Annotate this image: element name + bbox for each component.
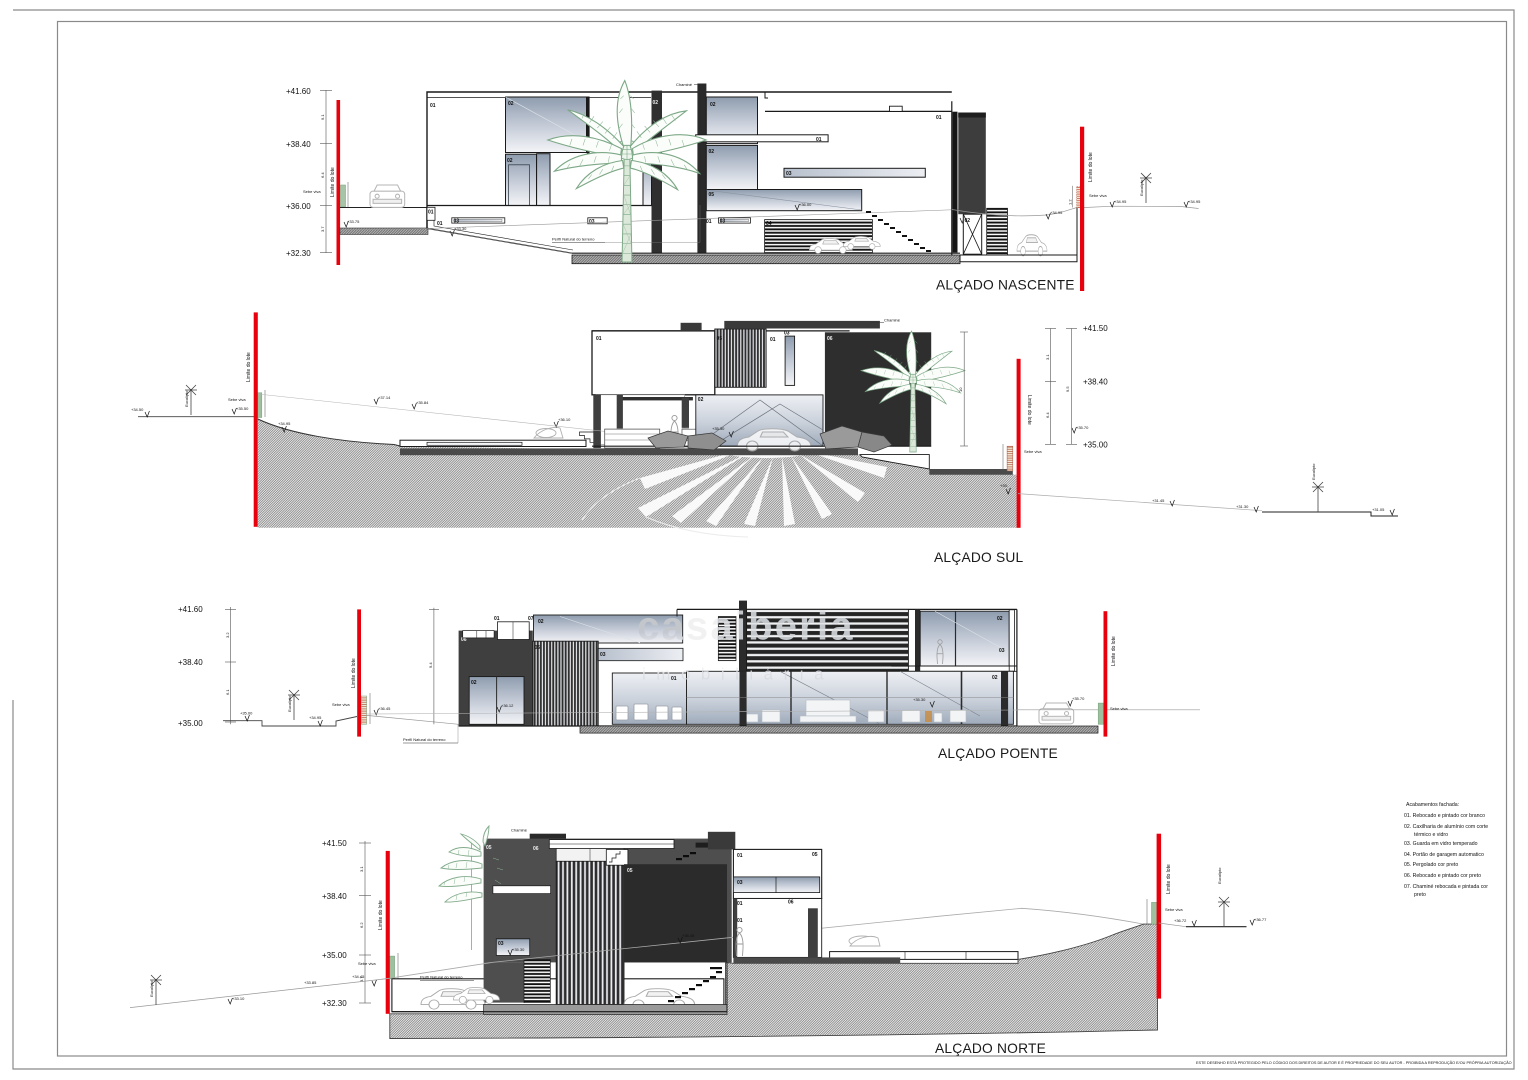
svg-text:+34.95: +34.95 xyxy=(1188,199,1201,204)
svg-text:Sebe viva: Sebe viva xyxy=(303,189,321,194)
svg-text:01: 01 xyxy=(428,210,434,216)
svg-text:9.5: 9.5 xyxy=(1065,386,1070,392)
svg-text:05: 05 xyxy=(486,845,492,851)
svg-text:+36.45: +36.45 xyxy=(682,933,695,938)
svg-text:Limite do lote: Limite do lote xyxy=(330,167,336,197)
svg-text:Eucalipto: Eucalipto xyxy=(287,695,292,712)
svg-text:térmico e vidro: térmico e vidro xyxy=(1414,832,1448,838)
svg-text:01: 01 xyxy=(770,337,776,343)
svg-text:+35.00: +35.00 xyxy=(322,951,347,960)
svg-text:+35.30: +35.30 xyxy=(512,947,525,952)
svg-text:03: 03 xyxy=(786,171,792,177)
svg-text:01: 01 xyxy=(706,219,712,225)
svg-text:01: 01 xyxy=(816,137,822,143)
svg-text:6.4: 6.4 xyxy=(1045,412,1050,418)
svg-text:+35.00: +35.00 xyxy=(1083,441,1108,450)
svg-text:+36.72: +36.72 xyxy=(1174,918,1187,923)
svg-text:07. Chaminé rebocada e pintada: 07. Chaminé rebocada e pintada cor xyxy=(1404,884,1488,890)
svg-text:6.4: 6.4 xyxy=(320,172,325,178)
svg-text:03: 03 xyxy=(498,941,504,947)
svg-text:05: 05 xyxy=(709,192,715,198)
svg-text:+38.40: +38.40 xyxy=(1083,378,1108,387)
svg-text:+36.77: +36.77 xyxy=(1254,917,1267,922)
svg-text:06: 06 xyxy=(533,846,539,852)
svg-text:+33.85: +33.85 xyxy=(304,980,317,985)
svg-text:+34.95: +34.95 xyxy=(1050,210,1063,215)
svg-text:+34.45: +34.45 xyxy=(352,974,365,979)
svg-text:+35.50: +35.50 xyxy=(236,406,249,411)
svg-text:3.1: 3.1 xyxy=(359,866,364,872)
svg-text:01: 01 xyxy=(430,103,436,109)
svg-text:04: 04 xyxy=(766,221,772,227)
svg-text:01: 01 xyxy=(737,918,743,924)
svg-text:Limite do lote: Limite do lote xyxy=(378,900,384,930)
svg-text:Limite do lote: Limite do lote xyxy=(1088,152,1094,182)
svg-text:+31.30: +31.30 xyxy=(1236,504,1249,509)
svg-text:Sebe viva: Sebe viva xyxy=(1110,706,1128,711)
svg-text:6.1: 6.1 xyxy=(225,689,230,695)
svg-text:Sebe viva: Sebe viva xyxy=(1024,449,1042,454)
svg-text:+35.70: +35.70 xyxy=(1076,425,1089,430)
svg-text:+33.: +33. xyxy=(1000,483,1008,488)
svg-text:Sebe viva: Sebe viva xyxy=(358,961,376,966)
svg-text:ALÇADO POENTE: ALÇADO POENTE xyxy=(938,746,1058,761)
svg-text:02: 02 xyxy=(965,218,971,224)
svg-text:05: 05 xyxy=(535,645,541,651)
svg-text:05. Pergolado cor preto: 05. Pergolado cor preto xyxy=(1404,862,1458,868)
svg-text:Chaminé: Chaminé xyxy=(884,318,901,323)
svg-text:03: 03 xyxy=(589,219,595,225)
svg-text:+35.00: +35.00 xyxy=(178,719,203,728)
svg-text:+33.10: +33.10 xyxy=(232,996,245,1001)
svg-text:Sebe viva: Sebe viva xyxy=(228,397,246,402)
svg-text:02: 02 xyxy=(653,100,659,106)
svg-text:03: 03 xyxy=(720,219,726,225)
svg-text:10: 10 xyxy=(958,387,963,392)
svg-text:+41.50: +41.50 xyxy=(322,839,347,848)
svg-text:02: 02 xyxy=(997,616,1003,622)
svg-text:03: 03 xyxy=(999,648,1005,654)
svg-text:+34.95: +34.95 xyxy=(278,421,291,426)
svg-text:Eucalipto: Eucalipto xyxy=(1139,179,1144,196)
svg-text:02: 02 xyxy=(508,101,514,107)
svg-text:+41.60: +41.60 xyxy=(286,87,311,96)
svg-text:Perfil Natural do terreno: Perfil Natural do terreno xyxy=(552,237,595,242)
svg-text:ESTE DESENHO ESTÁ PROTEGIDO PE: ESTE DESENHO ESTÁ PROTEGIDO PELO CÓDIGO … xyxy=(1196,1060,1512,1065)
svg-text:+32.30: +32.30 xyxy=(286,249,311,258)
svg-text:+36.00: +36.00 xyxy=(286,202,311,211)
svg-text:Chaminé: Chaminé xyxy=(511,828,528,833)
svg-text:Eucalipto: Eucalipto xyxy=(1217,867,1222,884)
svg-text:02: 02 xyxy=(698,397,704,403)
svg-text:+34.95: +34.95 xyxy=(309,715,322,720)
svg-text:01: 01 xyxy=(494,616,500,622)
svg-text:01: 01 xyxy=(437,221,443,227)
svg-text:ALÇADO NORTE: ALÇADO NORTE xyxy=(935,1041,1046,1056)
svg-text:Eucalipto: Eucalipto xyxy=(184,390,189,407)
svg-text:06: 06 xyxy=(827,336,833,342)
svg-text:3.1: 3.1 xyxy=(1045,354,1050,360)
svg-text:+38.40: +38.40 xyxy=(322,892,347,901)
svg-text:02: 02 xyxy=(507,158,513,164)
svg-text:02: 02 xyxy=(471,680,477,686)
svg-text:Chaminé: Chaminé xyxy=(676,82,693,87)
svg-text:05: 05 xyxy=(812,852,818,858)
svg-text:+34.95: +34.95 xyxy=(1114,199,1127,204)
svg-text:ALÇADO SUL: ALÇADO SUL xyxy=(934,550,1024,565)
svg-text:Sebe viva: Sebe viva xyxy=(1089,193,1107,198)
svg-text:+35.84: +35.84 xyxy=(416,400,429,405)
svg-text:Acabamentos fachada:: Acabamentos fachada: xyxy=(1406,802,1459,808)
svg-text:+33.75: +33.75 xyxy=(347,219,360,224)
svg-text:03. Guarda em vidro temperado: 03. Guarda em vidro temperado xyxy=(1404,841,1478,847)
svg-text:02: 02 xyxy=(538,619,544,625)
svg-text:01: 01 xyxy=(737,853,743,859)
svg-text:07: 07 xyxy=(528,616,534,622)
svg-text:Limite do lote: Limite do lote xyxy=(1111,636,1117,666)
svg-text:Perfil Natural do terreno: Perfil Natural do terreno xyxy=(420,975,463,980)
svg-text:+35.00: +35.00 xyxy=(240,711,253,716)
svg-text:Limite do lote: Limite do lote xyxy=(1026,395,1032,425)
svg-text:+36.45: +36.45 xyxy=(378,706,391,711)
svg-text:Limite do lote: Limite do lote xyxy=(1166,864,1172,894)
svg-text:Eucalipto: Eucalipto xyxy=(1311,463,1316,480)
svg-text:1.2: 1.2 xyxy=(1067,199,1072,205)
svg-text:05: 05 xyxy=(627,868,633,874)
svg-text:06: 06 xyxy=(788,900,794,906)
svg-text:02: 02 xyxy=(992,675,998,681)
svg-text:3.7: 3.7 xyxy=(320,226,325,232)
svg-text:+35.70: +35.70 xyxy=(1072,696,1085,701)
svg-text:+37.14: +37.14 xyxy=(378,395,391,400)
svg-text:+41.60: +41.60 xyxy=(178,605,203,614)
svg-text:6.2: 6.2 xyxy=(359,922,364,928)
svg-text:ALÇADO NASCENTE: ALÇADO NASCENTE xyxy=(936,278,1075,293)
svg-text:9.4: 9.4 xyxy=(428,662,433,668)
svg-text:01: 01 xyxy=(596,336,602,342)
svg-text:Limite do lote: Limite do lote xyxy=(351,658,357,688)
svg-text:Sebe viva: Sebe viva xyxy=(1165,907,1183,912)
svg-text:03: 03 xyxy=(454,219,460,225)
svg-text:03: 03 xyxy=(600,652,606,658)
svg-text:01: 01 xyxy=(737,901,743,907)
svg-text:preto: preto xyxy=(1414,892,1426,898)
svg-text:+36.10: +36.10 xyxy=(558,417,571,422)
svg-text:Eucalipto: Eucalipto xyxy=(149,980,154,997)
svg-text:02: 02 xyxy=(709,149,715,155)
svg-text:+38.40: +38.40 xyxy=(286,140,311,149)
svg-text:02. Caxilharia de alumínio com: 02. Caxilharia de alumínio com corte xyxy=(1404,824,1488,830)
svg-text:03: 03 xyxy=(737,880,743,886)
svg-text:+35.30: +35.30 xyxy=(712,426,725,431)
svg-text:Limite do lote: Limite do lote xyxy=(246,352,252,382)
svg-text:02: 02 xyxy=(710,102,716,108)
svg-text:06. Rebocado e pintado cor pre: 06. Rebocado e pintado cor preto xyxy=(1404,873,1481,879)
svg-text:+36.00: +36.00 xyxy=(799,202,812,207)
svg-text:05: 05 xyxy=(717,336,723,342)
svg-text:03: 03 xyxy=(784,331,790,337)
svg-text:casaiberia: casaiberia xyxy=(637,605,855,649)
svg-text:Sebe viva: Sebe viva xyxy=(332,702,350,707)
svg-text:04. Portão de garagem automati: 04. Portão de garagem automatico xyxy=(1404,852,1484,858)
svg-text:01. Rebocado e pintado cor bra: 01. Rebocado e pintado cor branco xyxy=(1404,813,1485,819)
svg-text:01: 01 xyxy=(936,115,942,121)
svg-text:9.1: 9.1 xyxy=(320,114,325,120)
svg-text:+31.05: +31.05 xyxy=(1372,507,1385,512)
svg-text:+41.50: +41.50 xyxy=(1083,324,1108,333)
svg-text:Perfil Natural do terreno: Perfil Natural do terreno xyxy=(403,737,446,742)
svg-text:+36.12: +36.12 xyxy=(501,703,514,708)
svg-text:imobiliária: imobiliária xyxy=(642,665,834,684)
svg-text:+38.40: +38.40 xyxy=(178,658,203,667)
svg-text:+32.30: +32.30 xyxy=(322,999,347,1008)
svg-text:+31.45: +31.45 xyxy=(1152,498,1165,503)
svg-text:3.2: 3.2 xyxy=(225,632,230,638)
svg-text:+33.30: +33.30 xyxy=(454,226,467,231)
svg-text:+34.50: +34.50 xyxy=(131,407,144,412)
